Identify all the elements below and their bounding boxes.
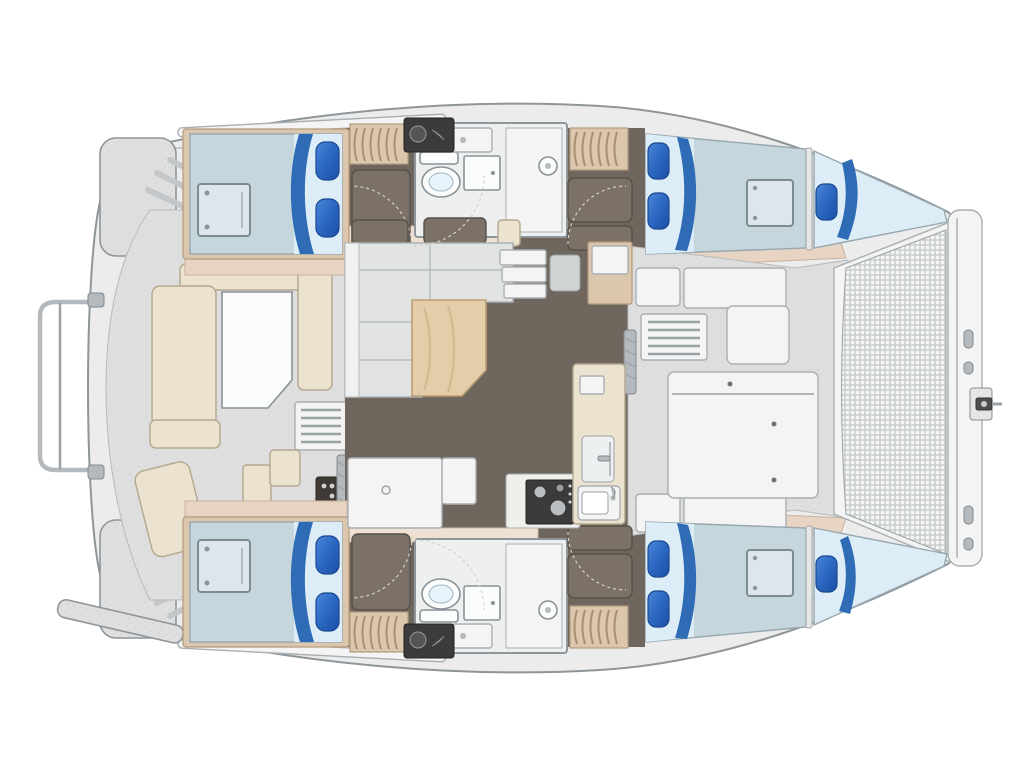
galley-refrigerator	[582, 436, 614, 482]
companionway-steps-port-forward	[570, 128, 628, 170]
pillow	[316, 199, 339, 237]
pillow	[316, 142, 339, 180]
trampoline-mesh	[842, 230, 947, 554]
cabin-door-starboard-aft	[352, 534, 412, 610]
aft-cockpit-table	[222, 292, 292, 408]
nav-station	[588, 242, 632, 304]
catamaran-floor-plan	[0, 0, 1035, 776]
toilet	[420, 579, 460, 622]
forward-cockpit-bench-top	[636, 268, 786, 308]
pillow	[816, 184, 837, 220]
deck-grate	[295, 402, 347, 450]
bow-locker-bench	[668, 372, 818, 498]
forward-table	[727, 306, 789, 364]
cabin-locker	[198, 184, 250, 236]
pillow	[648, 193, 669, 229]
head-sink-unit-starboard	[404, 624, 454, 658]
anchor-roller	[970, 388, 1002, 420]
galley-sink	[578, 486, 620, 520]
starboard-aft-cabin-bed	[183, 517, 349, 647]
galley-stove	[506, 474, 580, 528]
shower-drain	[539, 157, 557, 175]
salon-entry-steps	[500, 250, 546, 298]
shower-drain	[539, 601, 557, 619]
pillow	[316, 593, 339, 631]
toilet	[420, 152, 460, 197]
pillow	[648, 143, 669, 179]
companionway-steps-starboard-aft	[350, 612, 408, 652]
cabin-locker	[747, 550, 793, 596]
companionway-steps-port-aft	[350, 124, 408, 164]
pillow	[648, 591, 669, 627]
cabin-door-port-forward	[568, 178, 632, 250]
port-aft-cabin-bed	[183, 129, 349, 259]
sliding-door-forward	[624, 330, 636, 394]
nav-seat	[550, 255, 580, 291]
pillow	[316, 536, 339, 574]
cabin-door-starboard-forward	[568, 526, 632, 598]
salon-table	[412, 300, 486, 396]
cockpit-vent-grate	[641, 314, 707, 360]
companionway-steps-starboard-forward	[570, 606, 628, 648]
floor-plan-svg	[0, 0, 1035, 776]
cabin-locker	[198, 540, 250, 592]
pillow	[648, 541, 669, 577]
cabin-locker	[747, 180, 793, 226]
head-sink-unit-port	[404, 118, 454, 152]
pillow	[816, 556, 837, 592]
